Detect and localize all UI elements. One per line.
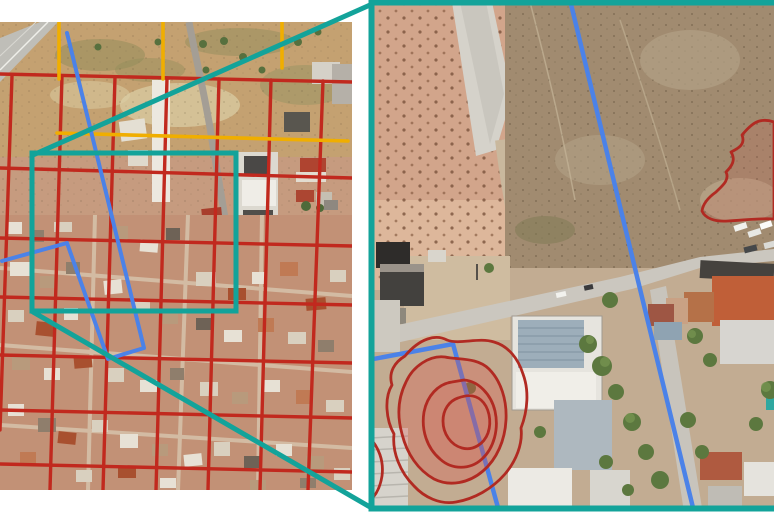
figure-canvas (0, 0, 774, 516)
damage-outline-inner (423, 380, 496, 467)
right-aerial-image (367, 0, 774, 516)
figure-svg (0, 0, 774, 516)
